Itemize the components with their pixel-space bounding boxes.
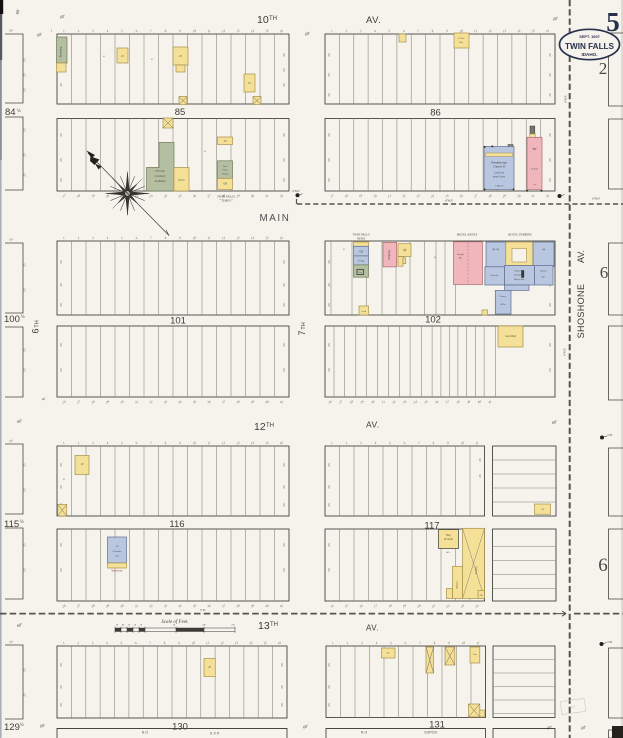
svg-text:25: 25: [282, 503, 286, 507]
svg-text:6′W.P.: 6′W.P.: [445, 199, 453, 203]
svg-text:Coal: Coal: [361, 310, 366, 313]
svg-text:Laundry: Laundry: [489, 274, 499, 277]
svg-text:Gas Shed: Gas Shed: [505, 335, 516, 338]
svg-text:6′W.: 6′W.: [200, 608, 205, 612]
svg-text:HOTEL PERRINE: HOTEL PERRINE: [507, 233, 532, 237]
svg-text:25: 25: [280, 685, 284, 689]
svg-text:25: 25: [23, 73, 27, 77]
svg-text:IDAHO.: IDAHO.: [581, 52, 597, 57]
svg-text:TH: TH: [266, 423, 274, 429]
svg-text:84: 84: [5, 107, 16, 118]
svg-text:25: 25: [282, 343, 286, 347]
svg-text:25: 25: [59, 158, 63, 162]
svg-text:25: 25: [282, 133, 286, 137]
svg-text:25: 25: [548, 133, 552, 137]
svg-text:25: 25: [282, 543, 286, 547]
svg-text:TH: TH: [269, 16, 277, 22]
svg-text:25: 25: [59, 543, 63, 547]
svg-text:Rooming: Rooming: [59, 46, 63, 58]
svg-text:MAIN: MAIN: [260, 213, 291, 224]
svg-text:25: 25: [327, 463, 331, 467]
svg-text:25: 25: [59, 260, 63, 264]
svg-text:Pantry: Pantry: [499, 295, 507, 298]
svg-text:25: 25: [282, 178, 286, 182]
svg-text:25: 25: [327, 568, 331, 572]
svg-text:Gas: Gas: [473, 654, 477, 656]
svg-text:100: 100: [480, 595, 483, 597]
svg-text:25: 25: [59, 343, 63, 347]
svg-text:25: 25: [23, 463, 27, 467]
svg-text:100: 100: [4, 314, 20, 325]
svg-text:25: 25: [548, 368, 552, 372]
svg-text:Falls: Falls: [222, 169, 228, 172]
svg-text:& Grain: & Grain: [444, 538, 454, 541]
svg-text:25: 25: [282, 53, 286, 57]
svg-text:25: 25: [282, 158, 286, 162]
svg-text:129: 129: [4, 722, 20, 733]
svg-text:TH: TH: [301, 322, 307, 329]
svg-text:25: 25: [282, 260, 286, 264]
svg-text:25: 25: [548, 178, 552, 182]
svg-text:Printg: Printg: [357, 260, 365, 263]
svg-text:25: 25: [59, 485, 63, 489]
svg-text:Gas: Gas: [359, 272, 362, 274]
svg-text:25: 25: [282, 283, 286, 287]
svg-text:Furn &: Furn &: [154, 169, 165, 173]
svg-text:46×: 46×: [446, 551, 450, 554]
svg-text:E X P.: E X P.: [210, 732, 220, 736]
svg-text:Gasoline: Gasoline: [113, 550, 122, 553]
svg-text:25: 25: [59, 368, 63, 372]
svg-text:25: 25: [23, 128, 27, 132]
svg-text:SEPT. 1907: SEPT. 1907: [579, 34, 600, 39]
svg-text:Rm: Rm: [458, 257, 462, 260]
svg-text:25: 25: [23, 693, 27, 697]
svg-text:25: 25: [327, 685, 331, 689]
svg-text:N O: N O: [142, 731, 149, 735]
svg-text:25: 25: [23, 543, 27, 547]
svg-text:86: 86: [430, 108, 441, 119]
svg-text:25: 25: [59, 685, 63, 689]
svg-text:Sampling: Sampling: [388, 249, 391, 260]
svg-text:Hay: Hay: [445, 534, 451, 537]
svg-text:Warehouse: Warehouse: [111, 570, 123, 573]
svg-text:LIB: LIB: [571, 705, 575, 709]
svg-text:101: 101: [170, 316, 186, 327]
svg-text:25: 25: [23, 668, 27, 672]
svg-text:25: 25: [327, 178, 331, 182]
svg-text:25: 25: [59, 283, 63, 287]
svg-text:25: 25: [327, 303, 331, 307]
svg-text:25: 25: [280, 663, 284, 667]
svg-text:25: 25: [327, 283, 331, 287]
svg-text:Hou: Hou: [458, 41, 464, 44]
svg-text:AV.: AV.: [366, 15, 381, 26]
svg-text:6′W.P.: 6′W.P.: [563, 348, 567, 356]
svg-text:NEWS: NEWS: [356, 237, 366, 241]
svg-text:12: 12: [254, 421, 266, 433]
svg-text:D.H.: D.H.: [606, 434, 612, 437]
svg-text:SHOSHONE: SHOSHONE: [576, 284, 586, 339]
svg-text:25: 25: [327, 368, 331, 372]
svg-text:25: 25: [548, 303, 552, 307]
svg-text:½: ½: [17, 107, 21, 113]
svg-text:25: 25: [59, 463, 63, 467]
svg-text:25: 25: [23, 288, 27, 292]
svg-text:25: 25: [282, 568, 286, 572]
svg-text:25: 25: [59, 303, 63, 307]
svg-text:1 Mill St: 1 Mill St: [495, 185, 504, 188]
svg-text:102: 102: [425, 315, 441, 326]
svg-text:25: 25: [282, 68, 286, 72]
svg-text:25: 25: [280, 703, 284, 707]
svg-text:25: 25: [327, 260, 331, 264]
svg-text:Off: Off: [542, 248, 546, 251]
svg-text:HOTEL ANNEX: HOTEL ANNEX: [456, 233, 479, 237]
svg-text:“TIMES”: “TIMES”: [219, 198, 232, 203]
svg-text:Oil: Oil: [115, 555, 118, 558]
svg-text:1 st: 1 st: [533, 183, 537, 186]
svg-text:25: 25: [59, 83, 63, 87]
svg-text:25: 25: [23, 368, 27, 372]
svg-text:D.H.: D.H.: [606, 641, 612, 644]
svg-text:Bar: Bar: [542, 277, 546, 279]
svg-text:25: 25: [23, 173, 27, 177]
svg-text:25: 25: [59, 663, 63, 667]
svg-text:25: 25: [327, 485, 331, 489]
svg-text:25: 25: [548, 93, 552, 97]
svg-text:6: 6: [598, 555, 608, 576]
svg-text:7: 7: [297, 330, 307, 335]
svg-text:TWIN FALLS: TWIN FALLS: [565, 41, 614, 51]
svg-text:25: 25: [59, 568, 63, 572]
svg-text:& Paints: & Paints: [155, 179, 167, 183]
svg-text:25: 25: [327, 703, 331, 707]
svg-text:25: 25: [327, 343, 331, 347]
svg-text:AV.: AV.: [366, 624, 379, 633]
svg-text:85: 85: [175, 107, 186, 118]
svg-text:Wagons: Wagons: [456, 581, 459, 589]
svg-text:25: 25: [548, 343, 552, 347]
svg-text:25: 25: [59, 133, 63, 137]
svg-text:25: 25: [548, 158, 552, 162]
svg-text:25: 25: [23, 58, 27, 62]
svg-text:25: 25: [282, 463, 286, 467]
svg-text:25: 25: [327, 158, 331, 162]
svg-text:6′W.P.: 6′W.P.: [292, 189, 300, 193]
svg-text:130: 130: [172, 722, 188, 733]
svg-text:B.Rm: B.Rm: [500, 303, 506, 306]
svg-text:25: 25: [59, 703, 63, 707]
svg-text:“BP”: “BP”: [531, 148, 538, 151]
svg-text:EXPOS': EXPOS': [424, 731, 437, 735]
svg-text:½: ½: [20, 518, 24, 524]
svg-text:10: 10: [257, 14, 269, 26]
svg-text:25: 25: [327, 543, 331, 547]
svg-text:25: 25: [282, 485, 286, 489]
svg-text:6′W.P.: 6′W.P.: [564, 95, 568, 103]
svg-text:25: 25: [59, 178, 63, 182]
svg-text:6: 6: [31, 328, 41, 333]
svg-text:Furn: Furn: [178, 178, 186, 182]
svg-text:25: 25: [327, 663, 331, 667]
svg-text:AV.: AV.: [576, 250, 586, 263]
svg-text:25: 25: [327, 133, 331, 137]
svg-text:25: 25: [23, 488, 27, 492]
svg-text:13: 13: [258, 620, 270, 632]
svg-text:117: 117: [424, 521, 439, 532]
svg-text:S T O: S T O: [531, 168, 537, 171]
svg-text:½: ½: [20, 721, 24, 727]
svg-text:25: 25: [23, 88, 27, 92]
svg-text:25: 25: [548, 73, 552, 77]
svg-text:2: 2: [599, 59, 608, 78]
svg-text:Church D: Church D: [493, 165, 506, 169]
svg-text:25: 25: [23, 568, 27, 572]
svg-text:25: 25: [282, 368, 286, 372]
svg-text:25: 25: [282, 303, 286, 307]
svg-text:25: 25: [478, 458, 482, 462]
svg-text:25: 25: [23, 263, 27, 267]
svg-text:Barber: Barber: [540, 271, 547, 273]
svg-text:1½ Sto: 1½ Sto: [458, 37, 465, 40]
svg-text:6′W.P.: 6′W.P.: [592, 197, 600, 201]
svg-text:mort·Cross: mort·Cross: [493, 176, 505, 179]
svg-text:½: ½: [21, 313, 25, 319]
svg-text:N O: N O: [361, 731, 368, 735]
svg-text:25: 25: [327, 53, 331, 57]
svg-text:Off Off: Off Off: [492, 248, 499, 251]
svg-text:116: 116: [169, 519, 184, 530]
svg-text:25: 25: [327, 93, 331, 97]
svg-text:25: 25: [23, 348, 27, 352]
svg-text:25: 25: [327, 73, 331, 77]
svg-text:6: 6: [600, 263, 609, 282]
svg-text:Crockery: Crockery: [154, 174, 166, 178]
svg-text:TH: TH: [35, 320, 41, 327]
svg-text:Livery: Livery: [474, 566, 478, 575]
svg-text:25: 25: [548, 53, 552, 57]
svg-text:25: 25: [282, 83, 286, 87]
svg-text:AV.: AV.: [366, 420, 380, 430]
svg-text:TH: TH: [270, 622, 278, 628]
svg-text:25: 25: [327, 503, 331, 507]
svg-text:Printg: Printg: [221, 173, 229, 176]
svg-text:(; not in·): (; not in·): [494, 172, 504, 175]
svg-text:Dining Rm: Dining Rm: [513, 278, 525, 281]
svg-text:25: 25: [23, 153, 27, 157]
svg-text:25: 25: [478, 474, 482, 478]
